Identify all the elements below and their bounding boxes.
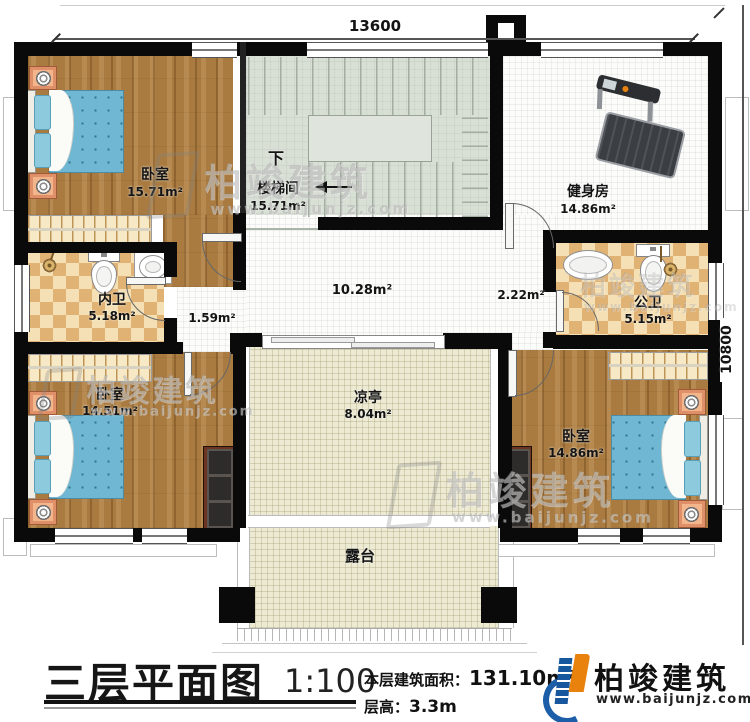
room-area-bedroom-tl: 15.71m² bbox=[105, 186, 205, 199]
room-label-bedroom-bl: 卧室 bbox=[70, 388, 150, 404]
sink-public bbox=[563, 250, 613, 280]
drawing-scale: 1:100 bbox=[284, 662, 374, 700]
bed-pillow bbox=[684, 460, 701, 496]
stair-edge-line bbox=[246, 228, 318, 230]
lamp-icon bbox=[35, 70, 52, 87]
window bbox=[192, 42, 237, 58]
room-label-gym: 健身房 bbox=[548, 185, 628, 201]
wall bbox=[556, 230, 708, 243]
closet-bottom-right bbox=[608, 352, 708, 380]
bed-pillow bbox=[684, 421, 701, 457]
wall bbox=[690, 528, 722, 542]
wall bbox=[620, 528, 643, 542]
wall bbox=[708, 42, 722, 263]
terrace-floor bbox=[237, 526, 512, 628]
dimension-line-right bbox=[742, 5, 744, 645]
nightstand bbox=[29, 173, 57, 199]
room-area-bedroom-bl: 14.51m² bbox=[70, 405, 150, 418]
lamp-icon bbox=[684, 394, 701, 411]
window bbox=[541, 42, 663, 58]
room-label-bedroom-br: 卧室 bbox=[536, 430, 616, 446]
bed-bottom-right bbox=[613, 389, 708, 526]
nightstand bbox=[678, 389, 706, 415]
shower-head-icon bbox=[42, 258, 57, 273]
closet-top-left bbox=[27, 215, 152, 244]
pillar bbox=[481, 587, 517, 623]
wall bbox=[490, 42, 503, 217]
room-area-bedroom-br: 14.86m² bbox=[536, 447, 616, 460]
floor-height-label: 层高： bbox=[364, 698, 409, 716]
room-area-bath-inner: 5.18m² bbox=[72, 310, 152, 323]
window bbox=[14, 265, 30, 332]
window bbox=[307, 42, 488, 58]
pavilion-floor bbox=[248, 346, 490, 518]
window bbox=[142, 528, 187, 544]
room-label-bath-inner: 内卫 bbox=[72, 293, 152, 309]
bed-pillow bbox=[34, 421, 51, 456]
extension-line-top bbox=[60, 5, 725, 6]
window bbox=[708, 263, 724, 320]
area-label-corridor: 1.59m² bbox=[172, 312, 252, 325]
terrace-balustrade bbox=[237, 628, 512, 641]
wall bbox=[14, 332, 28, 542]
wall bbox=[14, 242, 177, 253]
floor-height-row: 层高：3.3m bbox=[364, 696, 457, 717]
dimension-line-top bbox=[55, 38, 695, 40]
bed-pillow bbox=[34, 133, 51, 168]
cabinet-bottom-left bbox=[203, 446, 235, 530]
stair-landing bbox=[308, 115, 432, 162]
sliding-door bbox=[262, 335, 445, 349]
pillar bbox=[219, 587, 255, 623]
lamp-icon bbox=[35, 178, 52, 195]
wall bbox=[233, 342, 246, 528]
room-area-bath-public: 5.15m² bbox=[608, 313, 688, 326]
brand-logo-icon bbox=[541, 650, 589, 716]
shower-cord bbox=[660, 246, 662, 262]
room-label-pavilion: 凉亭 bbox=[328, 391, 408, 407]
area-label-vestibule: 2.22m² bbox=[481, 289, 561, 302]
room-area-stairwell: 15.71m² bbox=[238, 200, 318, 213]
ledge-right-bottom bbox=[722, 418, 744, 510]
room-label-bath-public: 公卫 bbox=[608, 296, 688, 312]
terrace-step-line-1 bbox=[222, 643, 527, 644]
terrace-step-band bbox=[248, 515, 490, 528]
stair-treads-lower bbox=[308, 162, 462, 217]
title-underline bbox=[44, 700, 356, 704]
bed-pillow bbox=[34, 95, 51, 130]
dimension-right-value: 10800 bbox=[720, 318, 740, 382]
stair-down-label: 下 bbox=[256, 150, 296, 168]
wall bbox=[14, 42, 28, 265]
wall bbox=[14, 342, 183, 354]
sill-bottom-left bbox=[30, 544, 217, 557]
wall bbox=[187, 528, 240, 542]
bed-pillow bbox=[34, 459, 51, 494]
title-underline-2 bbox=[44, 707, 356, 709]
window bbox=[708, 415, 724, 505]
closet-bottom-left bbox=[27, 354, 152, 382]
wall bbox=[230, 333, 262, 347]
wall bbox=[443, 333, 512, 349]
nightstand bbox=[29, 391, 57, 415]
wall bbox=[553, 335, 708, 349]
floor-area-label: 本层建筑面积： bbox=[364, 671, 469, 689]
room-area-pavilion: 8.04m² bbox=[328, 408, 408, 421]
stair-direction-arrow-line bbox=[326, 186, 352, 188]
wall bbox=[164, 253, 177, 277]
room-label-stairwell: 楼梯间 bbox=[238, 182, 318, 198]
room-label-bedroom-tl: 卧室 bbox=[105, 168, 205, 184]
dimension-top-value: 13600 bbox=[330, 18, 420, 35]
floor-height-value: 3.3m bbox=[409, 697, 457, 717]
shower-head-icon bbox=[663, 262, 678, 277]
lamp-icon bbox=[35, 395, 52, 412]
nightstand bbox=[29, 66, 57, 90]
room-label-terrace: 露台 bbox=[320, 548, 400, 565]
stair-treads-return bbox=[462, 115, 488, 217]
dimension-tick bbox=[713, 7, 724, 18]
wall bbox=[500, 528, 578, 542]
room-area-gym: 14.86m² bbox=[548, 203, 628, 216]
brand-website: www.baijunjz.com bbox=[596, 692, 750, 707]
wall bbox=[14, 42, 192, 56]
wall bbox=[133, 528, 142, 542]
wall bbox=[237, 42, 307, 56]
stair-treads-upper bbox=[248, 57, 488, 115]
window bbox=[55, 528, 133, 544]
window bbox=[643, 528, 690, 544]
wall bbox=[14, 528, 55, 542]
nightstand bbox=[678, 500, 706, 528]
sill-bottom-right bbox=[498, 544, 715, 557]
lamp-icon bbox=[35, 504, 52, 521]
area-label-hall: 10.28m² bbox=[322, 284, 402, 299]
window bbox=[578, 528, 620, 544]
toilet-inner bbox=[88, 250, 118, 294]
lamp-icon bbox=[684, 506, 701, 523]
floor-plan-page: 卧室 15.71m² 下 楼梯间 15.71m² 健身房 14.86m² 内卫 … bbox=[0, 0, 750, 722]
nightstand bbox=[29, 499, 57, 525]
ledge-right-top bbox=[725, 97, 749, 211]
wall bbox=[318, 217, 503, 230]
